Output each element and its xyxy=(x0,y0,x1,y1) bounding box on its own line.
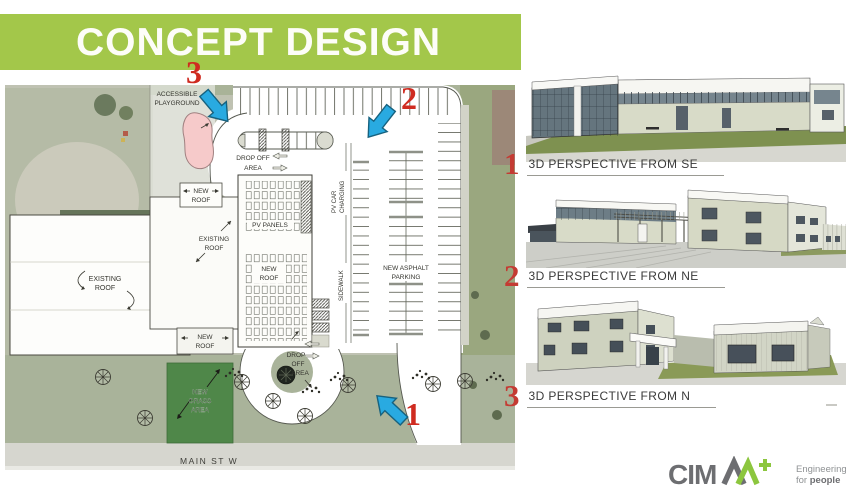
label-pv-panels: PV PANELS xyxy=(252,222,288,229)
label-pv-car-charging: PV CAR xyxy=(332,190,338,213)
site-plan: ACCESSIBLE PLAYGROUND DROP OFF AREA NEW … xyxy=(5,85,515,470)
svg-text:OFF: OFF xyxy=(292,361,305,368)
logo-a-green-stroke xyxy=(738,463,757,484)
svg-text:ROOF: ROOF xyxy=(95,285,115,292)
svg-text:CHARGING: CHARGING xyxy=(340,180,346,213)
label-drop-off-bottom: DROP xyxy=(287,352,306,359)
perspective-number-1: 1 xyxy=(504,152,520,176)
logo-plus-icon xyxy=(759,459,771,471)
perspective-number-3: 3 xyxy=(504,384,520,408)
svg-text:PARKING: PARKING xyxy=(392,274,421,281)
render-perspective-n xyxy=(526,297,846,385)
perspective-title-3: 3D PERSPECTIVE FROM N xyxy=(527,389,717,408)
label-new-grass-area: NEW xyxy=(192,389,208,396)
logo-cim-text: CIM xyxy=(668,459,716,490)
label-existing-roof-upper: EXISTING xyxy=(199,236,229,243)
label-sidewalk: SIDEWALK xyxy=(339,270,345,301)
svg-text:ROOF: ROOF xyxy=(205,245,224,252)
site-plan-drawing: ACCESSIBLE PLAYGROUND DROP OFF AREA NEW … xyxy=(5,85,515,470)
brand-tagline: Engineering for people xyxy=(796,464,846,486)
route-marker-3: 3 xyxy=(186,56,202,88)
new-roof-box-bottom xyxy=(177,328,233,354)
tagline-line1: Engineering xyxy=(796,464,846,475)
label-new-roof-bottom: NEW xyxy=(197,334,213,341)
perspective-title-2: 3D PERSPECTIVE FROM NE xyxy=(527,269,725,288)
perspective-number-2: 2 xyxy=(504,264,520,288)
label-new-roof-top: NEW xyxy=(193,188,209,195)
svg-text:ROOF: ROOF xyxy=(196,343,215,350)
cima-logo: CIM xyxy=(668,456,776,490)
page-title: CONCEPT DESIGN xyxy=(0,23,441,62)
perspective-label-1: 1 3D PERSPECTIVE FROM SE xyxy=(504,152,724,176)
title-banner: CONCEPT DESIGN xyxy=(0,14,521,70)
svg-text:ROOF: ROOF xyxy=(260,275,279,282)
svg-text:AREA: AREA xyxy=(191,407,209,414)
existing-building-upper xyxy=(150,197,238,329)
svg-text:GRASS: GRASS xyxy=(189,398,212,405)
playground-shape xyxy=(183,113,214,169)
svg-text:ROOF: ROOF xyxy=(192,197,211,204)
accessible-playground xyxy=(183,113,214,169)
small-mark xyxy=(826,404,837,406)
render-perspective-se xyxy=(526,70,846,162)
svg-text:PLAYGROUND: PLAYGROUND xyxy=(154,100,199,107)
tagline-line2: for people xyxy=(796,475,846,486)
perspective-label-3: 3 3D PERSPECTIVE FROM N xyxy=(504,384,716,408)
label-main-st-w: MAIN ST W xyxy=(180,456,238,466)
label-new-roof-center: NEW xyxy=(261,266,277,273)
route-marker-1: 1 xyxy=(405,398,421,430)
new-building-pv xyxy=(238,175,312,347)
label-accessible-playground: ACCESSIBLE xyxy=(157,91,198,98)
svg-text:AREA: AREA xyxy=(291,370,309,377)
render-perspective-ne xyxy=(526,184,846,268)
brand-footer: CIM Engineering for people xyxy=(668,456,846,490)
concept-design-slide: CONCEPT DESIGN xyxy=(0,0,846,499)
perspective-label-2: 2 3D PERSPECTIVE FROM NE xyxy=(504,264,725,288)
label-new-asphalt-parking: NEW ASPHALT xyxy=(383,265,429,272)
label-existing-roof-main: EXISTING xyxy=(89,276,122,283)
perspective-title-1: 3D PERSPECTIVE FROM SE xyxy=(527,157,725,176)
route-marker-2: 2 xyxy=(401,82,417,114)
svg-text:AREA: AREA xyxy=(244,165,262,172)
label-drop-off-top: DROP OFF xyxy=(236,155,269,162)
